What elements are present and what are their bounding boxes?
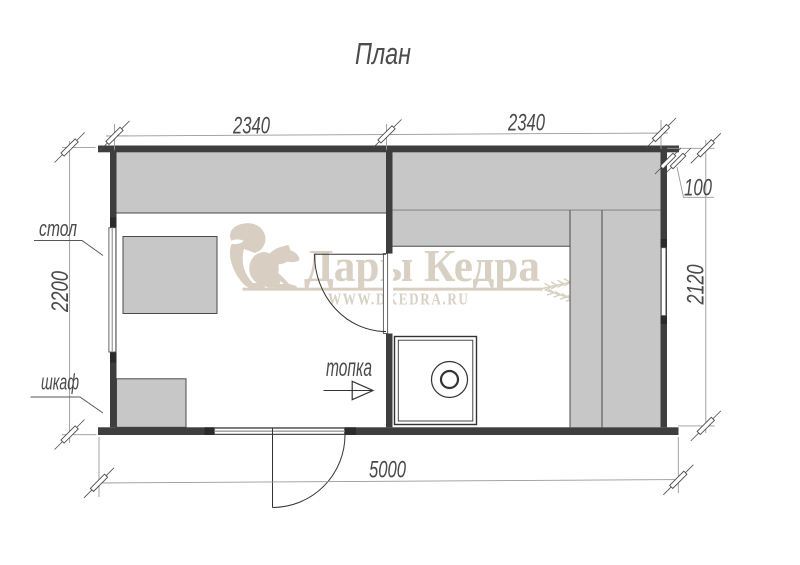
svg-text:стол: стол: [39, 216, 77, 241]
svg-text:2340: 2340: [232, 113, 270, 140]
svg-text:5000: 5000: [369, 456, 406, 483]
svg-text:100: 100: [684, 175, 712, 202]
svg-text:План: План: [355, 36, 411, 71]
svg-text:2200: 2200: [47, 270, 74, 312]
svg-text:Дары Кедра: Дары Кедра: [304, 240, 540, 291]
svg-text:шкаф: шкаф: [41, 370, 79, 395]
svg-text:2120: 2120: [683, 264, 710, 305]
svg-text:2340: 2340: [507, 110, 545, 137]
svg-text:WWW.DKEDRA.RU: WWW.DKEDRA.RU: [328, 290, 470, 309]
svg-text:топка: топка: [326, 354, 372, 382]
